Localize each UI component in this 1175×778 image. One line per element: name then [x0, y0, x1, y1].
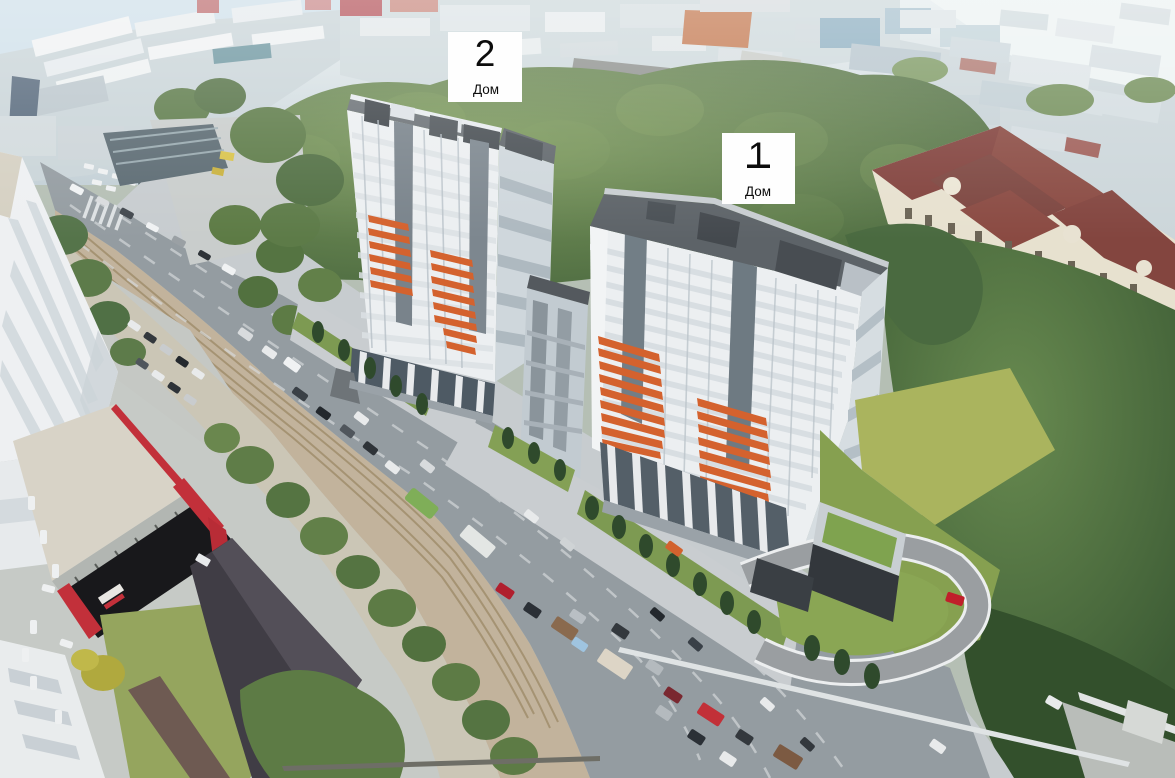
svg-text:1: 1 [748, 135, 769, 176]
svg-text:Дом: Дом [473, 82, 499, 97]
svg-text:2: 2 [475, 33, 496, 74]
svg-text:Дом: Дом [745, 184, 771, 199]
